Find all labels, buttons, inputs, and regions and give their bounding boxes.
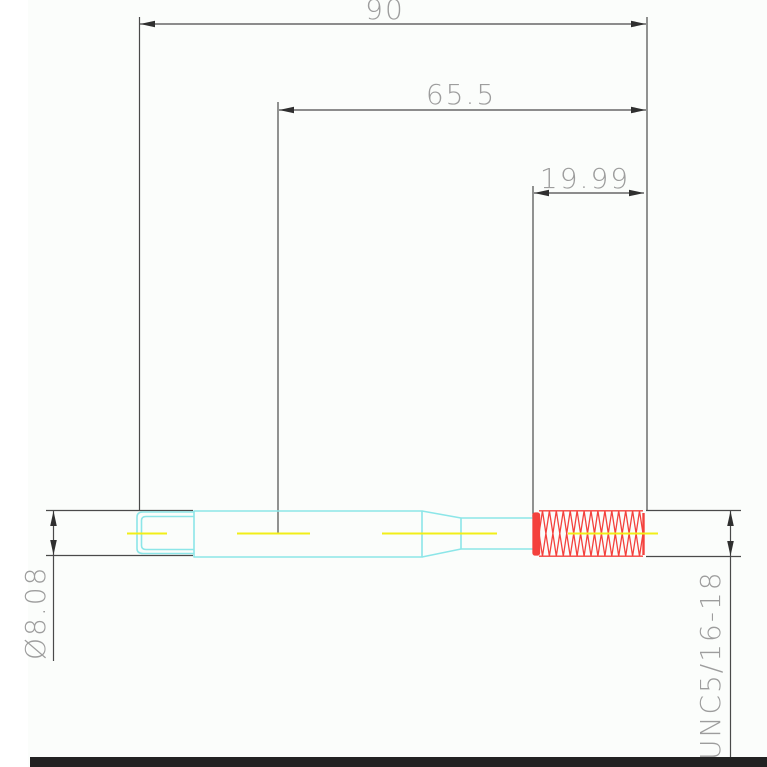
- extension-lines: [46, 17, 741, 557]
- dim-label-diameter: Ø8.08: [22, 566, 50, 660]
- dim-label-thread-spec: UNC5/16-18: [697, 570, 725, 760]
- arrowheads: [50, 21, 734, 556]
- drawing-linework: [0, 0, 767, 767]
- dim-label-body-length: 65.5: [426, 81, 496, 109]
- bottom-bar: [30, 757, 767, 767]
- dim-label-thread-length: 19.99: [540, 165, 630, 193]
- drawing-canvas: 90 65.5 19.99 Ø8.08 UNC5/16-18: [0, 0, 767, 767]
- dimension-lines: [54, 24, 731, 760]
- dim-label-overall-length: 90: [365, 0, 405, 24]
